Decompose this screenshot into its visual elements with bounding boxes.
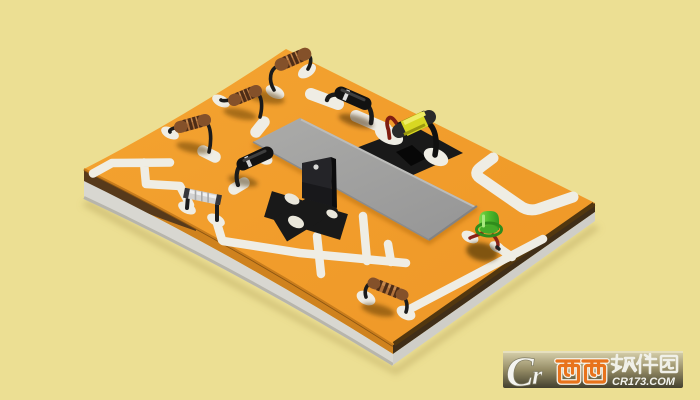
svg-text:CR173.COM: CR173.COM: [612, 376, 676, 388]
